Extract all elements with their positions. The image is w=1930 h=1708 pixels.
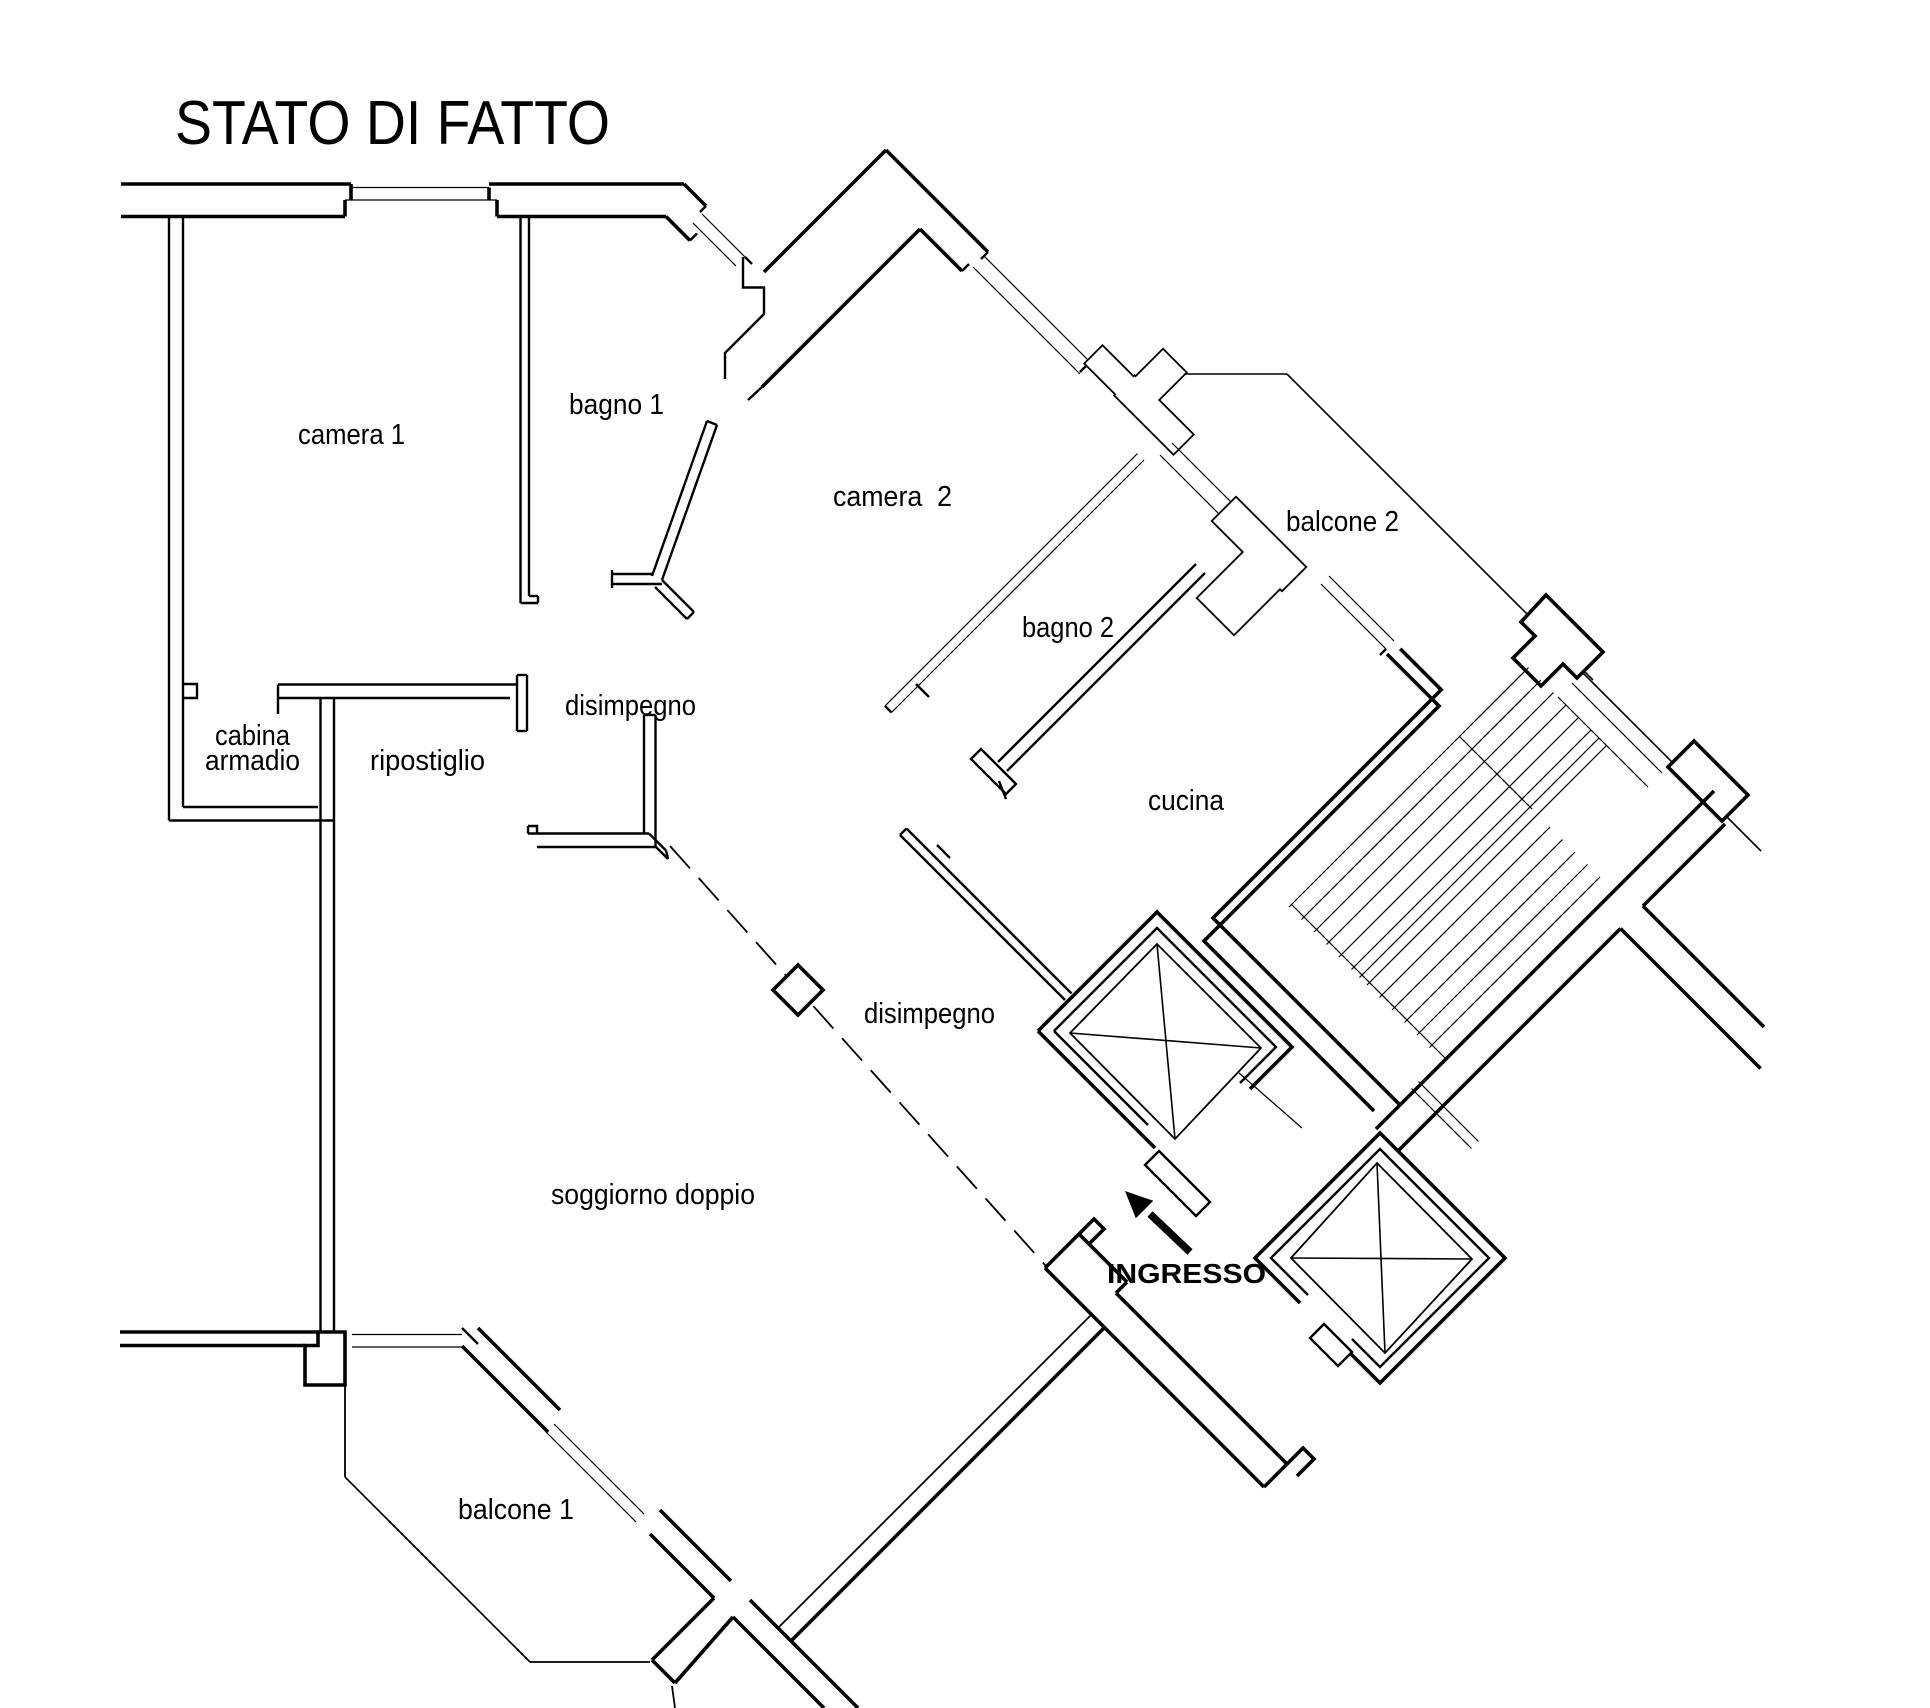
svg-text:disimpegno: disimpegno	[864, 998, 995, 1030]
svg-text:STATO DI FATTO: STATO DI FATTO	[175, 89, 610, 158]
svg-text:armadio: armadio	[205, 745, 300, 777]
svg-text:bagno 1: bagno 1	[569, 389, 664, 421]
svg-text:camera 2: camera 2	[833, 481, 952, 513]
svg-text:bagno 2: bagno 2	[1022, 612, 1114, 644]
svg-text:balcone 1: balcone 1	[458, 1494, 574, 1526]
svg-text:ripostiglio: ripostiglio	[370, 745, 485, 777]
svg-text:balcone 2: balcone 2	[1286, 506, 1399, 538]
svg-text:camera 1: camera 1	[298, 419, 405, 451]
svg-text:disimpegno: disimpegno	[565, 690, 696, 722]
svg-text:INGRESSO: INGRESSO	[1107, 1258, 1266, 1289]
svg-text:soggiorno doppio: soggiorno doppio	[551, 1179, 755, 1211]
svg-text:cucina: cucina	[1148, 785, 1225, 817]
